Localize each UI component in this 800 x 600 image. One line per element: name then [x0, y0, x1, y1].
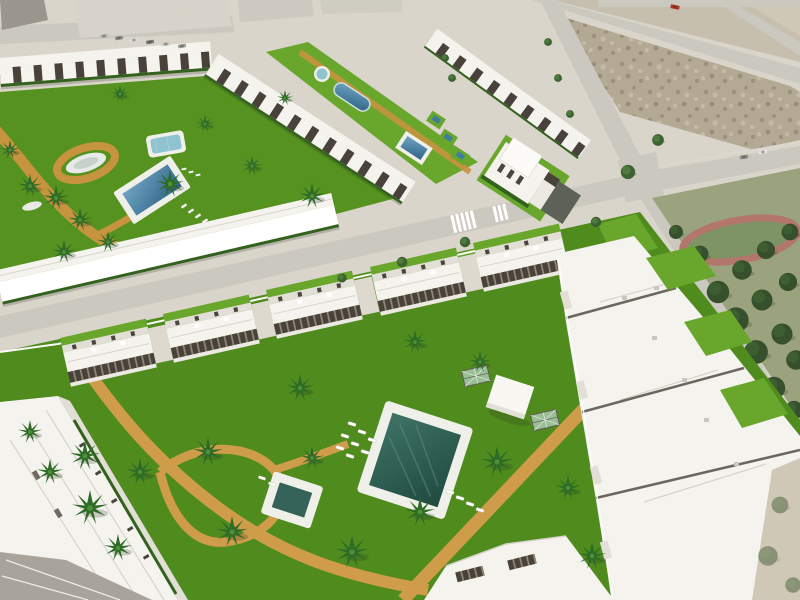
aerial-render-svg — [0, 0, 800, 600]
round-fountain — [314, 66, 330, 82]
aerial-render-image — [0, 0, 800, 600]
faded-tree — [785, 577, 800, 592]
road — [598, 0, 800, 7]
town-building — [320, 0, 402, 14]
